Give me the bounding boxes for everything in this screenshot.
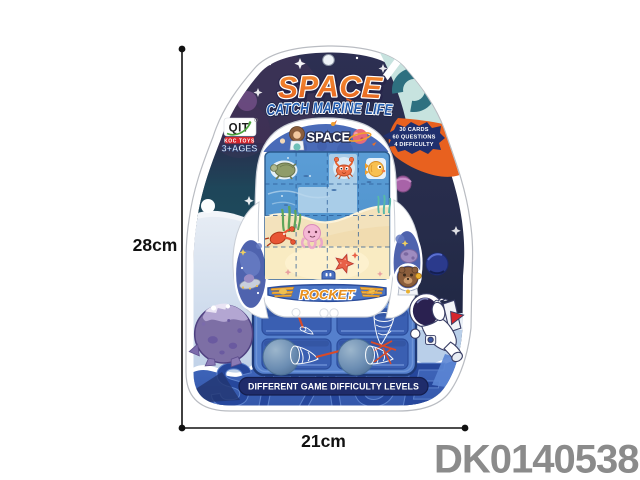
svg-text:30 CARDS: 30 CARDS bbox=[399, 127, 428, 133]
svg-text:4 DIFFICULTY: 4 DIFFICULTY bbox=[394, 142, 433, 148]
svg-text:60 QUESTIONS: 60 QUESTIONS bbox=[392, 135, 435, 141]
svg-text:SPACE: SPACE bbox=[307, 131, 351, 145]
svg-text:ROCKET: ROCKET bbox=[300, 287, 356, 302]
svg-text:DK01405387: DK01405387 bbox=[434, 438, 640, 480]
svg-text:DIFFERENT GAME DIFFICULTY LEVE: DIFFERENT GAME DIFFICULTY LEVELS bbox=[248, 382, 419, 392]
svg-text:3+AGES: 3+AGES bbox=[222, 144, 258, 154]
svg-text:21cm: 21cm bbox=[301, 431, 346, 451]
svg-text:CATCH MARINE LIFE: CATCH MARINE LIFE bbox=[266, 98, 393, 118]
svg-text:28cm: 28cm bbox=[133, 235, 178, 255]
